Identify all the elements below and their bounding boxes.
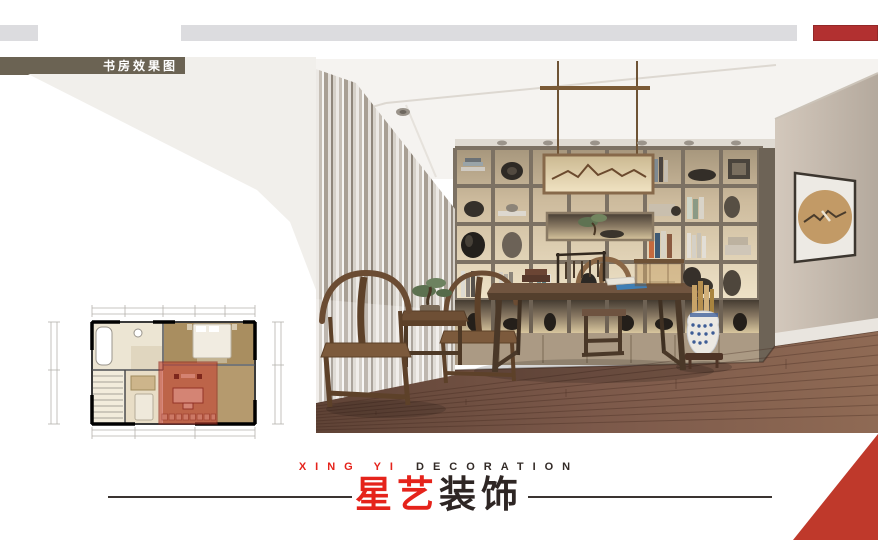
top-bar-gray-long [181,25,797,41]
study-room-rendering [316,59,878,433]
brand-english-dark: DECORATION [416,461,579,473]
background-wedge [0,74,316,294]
floor-plan [45,300,290,443]
page-title: 书房效果图 [0,57,185,75]
top-bar-red [813,25,878,41]
brand-chinese-red: 星艺 [355,474,439,515]
display-box-bonsai [547,213,653,240]
brand-english: XING YIDECORATION [0,461,878,473]
wall-artwork [795,173,855,262]
brand-english-red: XING YI [299,461,402,473]
study-room-highlight [159,362,217,424]
brand-chinese-dark: 装饰 [439,474,523,515]
brand-chinese: 星艺装饰 [0,474,878,516]
badge-strip [185,57,316,75]
presentation-slide: 书房效果图 [0,0,878,540]
top-bar-gray-left [0,25,38,41]
